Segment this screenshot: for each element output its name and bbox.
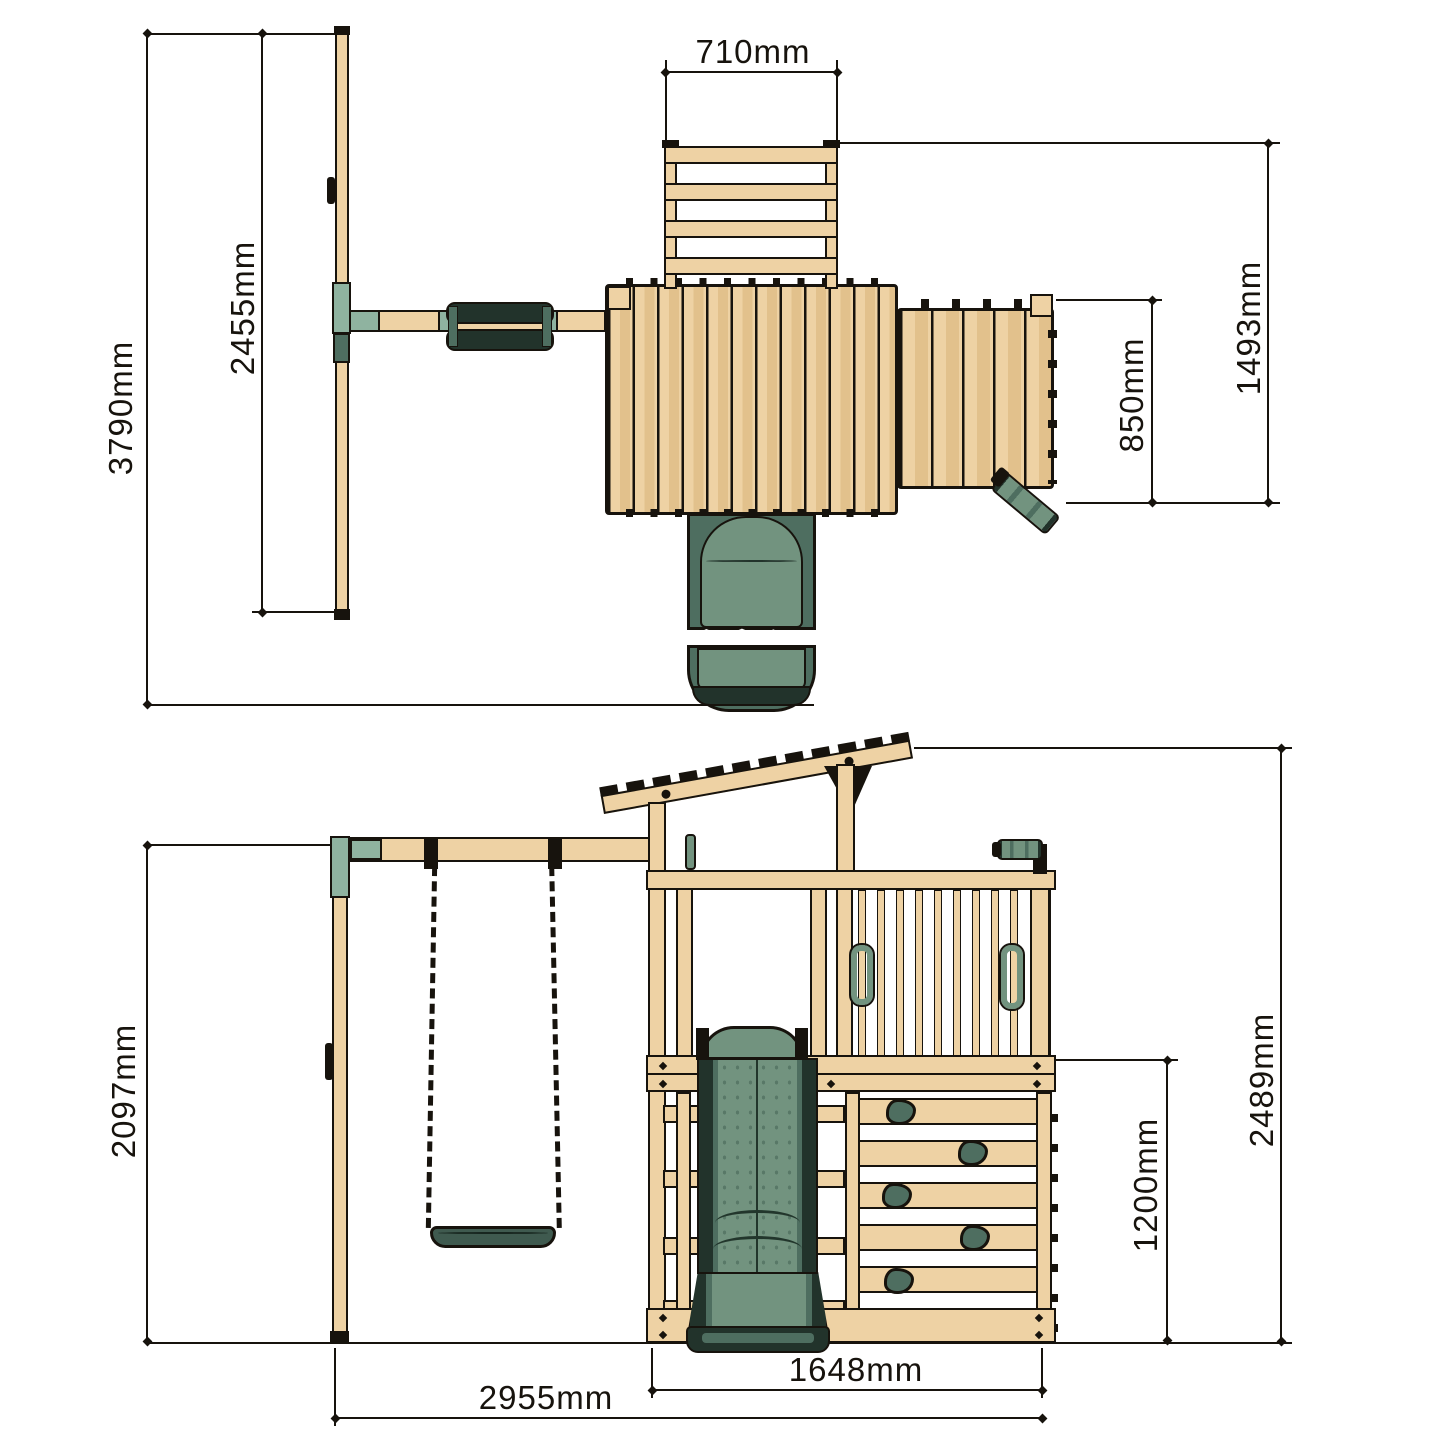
frame-clamp <box>327 177 335 204</box>
slide-end-cap <box>686 1326 830 1353</box>
dim-line-swing-height <box>146 844 148 1343</box>
dimension-diagram: 3790mm 2455mm 710mm 850mm 1493mm <box>0 0 1445 1445</box>
grab-handle <box>851 945 873 1005</box>
dim-label-deck-depth: 850mm <box>1113 337 1151 452</box>
beam-bracket-front <box>330 836 350 898</box>
dim-label-overall-height: 2489mm <box>1243 1013 1281 1147</box>
dim-label-wall-height: 1200mm <box>1127 1118 1165 1252</box>
corner-post-plan <box>607 286 631 310</box>
main-platform-plan <box>605 284 898 515</box>
swing-chain <box>549 866 562 1228</box>
swing-beam-front <box>348 837 650 862</box>
dim-label-swing-frame-width: 2455mm <box>224 241 262 375</box>
swing-chain <box>426 866 437 1228</box>
dim-line-tower-width <box>651 1389 1043 1391</box>
dim-label-tower-width: 1648mm <box>789 1351 923 1389</box>
dim-line-overall-width <box>334 1417 1043 1419</box>
dim-label-ladder-width: 710mm <box>695 33 810 71</box>
corner-post-plan <box>1030 294 1053 317</box>
swing-post-front <box>332 855 348 1343</box>
dim-line-ladder-width <box>665 71 838 73</box>
dim-label-tower-depth: 1493mm <box>1230 261 1268 395</box>
swing-top-plan <box>446 302 554 324</box>
dim-label-overall-width: 2955mm <box>479 1379 613 1417</box>
top-rail <box>646 870 1056 890</box>
wall-side-rail <box>845 1092 860 1343</box>
grab-handle <box>1001 945 1023 1009</box>
dim-line-overall-depth <box>146 33 148 705</box>
dim-line-wall-height <box>1166 1059 1168 1343</box>
dim-label-swing-height: 2097mm <box>105 1024 143 1158</box>
dim-line-deck-depth <box>1151 299 1153 504</box>
dim-label-overall-depth: 3790mm <box>102 341 140 475</box>
balcony-deck-plan <box>897 308 1054 489</box>
grab-handle <box>685 834 696 870</box>
swing-seat <box>430 1226 556 1248</box>
roof-post <box>836 764 855 874</box>
telescope-icon <box>997 839 1043 860</box>
